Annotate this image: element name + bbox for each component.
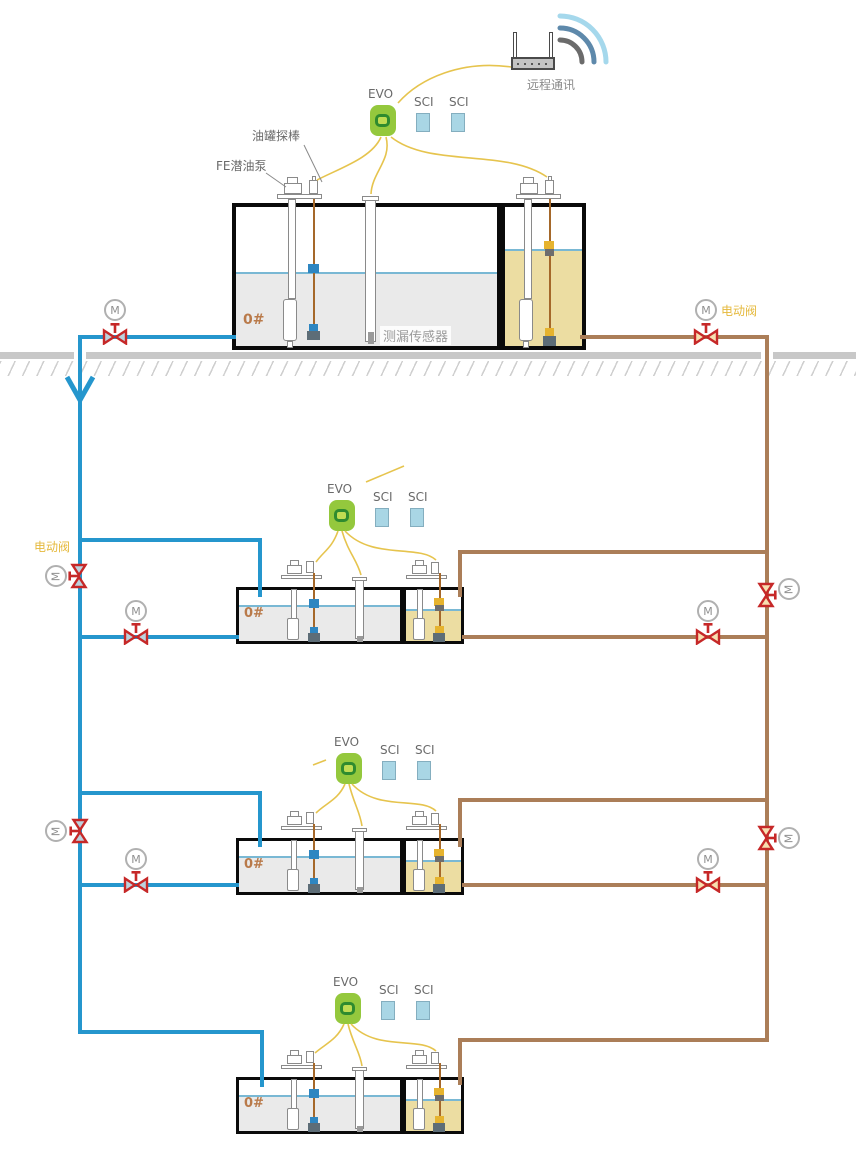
pump-column xyxy=(524,199,532,299)
probe-head xyxy=(431,562,439,574)
leak-sensor-foot xyxy=(368,332,374,344)
sci-module-icon xyxy=(416,1001,430,1020)
pump-tip xyxy=(287,341,293,348)
evo-console-4: EVO SCI SCI xyxy=(335,976,435,1024)
pump-head-cap xyxy=(287,177,298,184)
motor-valve-icon xyxy=(693,323,719,345)
motor-valve-icon xyxy=(68,563,90,589)
probe-head xyxy=(431,813,439,825)
probe-head xyxy=(431,1052,439,1064)
manhole-plate xyxy=(281,575,322,579)
diesel-branch-tank2-top xyxy=(80,540,260,597)
ground-line xyxy=(0,352,74,359)
motor-valve-icon xyxy=(755,582,777,608)
motor-actuator: M xyxy=(104,299,126,321)
leak-sensor-foot xyxy=(357,1126,363,1132)
tank-1-gasoline-liquid xyxy=(505,249,582,346)
submersible-pump-body xyxy=(283,299,297,341)
motor-letter: M xyxy=(783,584,796,594)
probe-float-stop xyxy=(435,605,444,611)
motor-actuator: M xyxy=(695,299,717,321)
leak-sensor-foot xyxy=(357,636,363,642)
leak-sensor-label: 测漏传感器 xyxy=(380,326,451,345)
sci-label: SCI xyxy=(380,744,400,757)
submersible-pump-body xyxy=(287,869,299,891)
leak-sensor-collar xyxy=(352,828,367,832)
sci-label: SCI xyxy=(415,744,435,757)
evo-console-icon xyxy=(370,105,396,136)
fuel-grade-label: 0# xyxy=(244,606,264,621)
diesel-pipeline xyxy=(67,337,262,1087)
manhole-plate xyxy=(281,1065,322,1069)
pump-head xyxy=(287,565,302,574)
sci-label: SCI xyxy=(408,491,428,504)
evo-console-1: EVO SCI SCI xyxy=(370,88,470,136)
evo-label: EVO xyxy=(368,88,393,101)
pump-column xyxy=(291,1079,297,1109)
evo-label: EVO xyxy=(334,736,359,749)
diesel-main-line xyxy=(80,337,262,1087)
motor-valve-icon xyxy=(695,623,721,645)
motor-letter: M xyxy=(131,605,141,618)
probe-head xyxy=(309,180,318,194)
manhole-plate xyxy=(516,194,561,199)
pump-column xyxy=(291,840,297,870)
probe-float xyxy=(435,1116,444,1123)
probe-float xyxy=(544,241,554,249)
router-antenna xyxy=(513,32,517,58)
probe-float xyxy=(545,328,554,336)
pump-head-cap xyxy=(523,177,534,184)
motor-letter: M xyxy=(703,605,713,618)
motor-actuator: M xyxy=(697,848,719,870)
probe-base xyxy=(543,336,556,346)
motor-actuator: M xyxy=(45,565,67,587)
probe-float xyxy=(309,850,319,859)
sci-module-icon xyxy=(416,113,430,132)
pump-column xyxy=(288,199,296,299)
probe-base xyxy=(307,331,320,340)
probe-base xyxy=(308,633,320,642)
pump-head-cap xyxy=(290,1050,299,1056)
probe-base xyxy=(433,884,445,893)
pump-head xyxy=(412,565,427,574)
tank-3-divider-wall xyxy=(400,838,406,895)
router-antenna xyxy=(549,32,553,58)
leak-sensor-tube xyxy=(355,1067,364,1129)
sci-module-icon xyxy=(410,508,424,527)
probe-base xyxy=(433,633,445,642)
probe-float xyxy=(435,877,444,884)
probe-head xyxy=(306,812,314,824)
pump-head xyxy=(287,1055,302,1064)
probe-float xyxy=(309,1089,319,1098)
gasoline-branch-tank2-top xyxy=(460,552,767,597)
evo-label: EVO xyxy=(327,483,352,496)
gasoline-pipeline xyxy=(460,337,767,1085)
leak-sensor-tube xyxy=(355,828,364,890)
fuel-grade-label: 0# xyxy=(244,857,264,872)
pump-head xyxy=(412,1055,427,1064)
motor-valve-icon xyxy=(123,871,149,893)
tank-2-divider-wall xyxy=(400,587,406,644)
pump-column xyxy=(291,589,297,619)
sci-module-icon xyxy=(451,113,465,132)
evo-console-2: EVO SCI SCI xyxy=(329,483,429,531)
motor-letter: M xyxy=(701,304,711,317)
motor-actuator: M xyxy=(125,600,147,622)
pump-head-cap xyxy=(290,811,299,817)
motor-valve-icon xyxy=(102,323,128,345)
motor-valve-icon xyxy=(69,818,91,844)
sci-module-icon xyxy=(382,761,396,780)
flow-arrow xyxy=(67,377,93,400)
probe-float-stop xyxy=(545,249,554,256)
pump-head xyxy=(287,816,302,825)
submersible-pump-callout: FE潜油泵 xyxy=(216,160,267,173)
remote-comm-label: 远程通讯 xyxy=(527,79,575,92)
motor-actuator: M xyxy=(697,600,719,622)
pump-head xyxy=(520,183,538,194)
motor-valve-icon xyxy=(695,871,721,893)
motor-valve-icon xyxy=(123,623,149,645)
leak-sensor-foot xyxy=(357,887,363,893)
submersible-pump-body xyxy=(413,869,425,891)
submersible-pump-body xyxy=(413,618,425,640)
electric-valve-label: 电动阀 xyxy=(721,305,757,318)
pump-head xyxy=(284,183,302,194)
sci-label: SCI xyxy=(449,96,469,109)
evo-screen xyxy=(375,114,390,127)
sci-label: SCI xyxy=(379,984,399,997)
sci-label: SCI xyxy=(373,491,393,504)
pump-head-cap xyxy=(415,1050,424,1056)
evo-screen xyxy=(341,762,356,775)
leak-sensor-tube xyxy=(355,577,364,639)
submersible-pump-body xyxy=(287,1108,299,1130)
gasoline-main-line xyxy=(460,337,767,1085)
submersible-pump-body xyxy=(519,299,533,341)
sci-label: SCI xyxy=(414,984,434,997)
wireless-router xyxy=(511,57,555,70)
probe-head-cap xyxy=(548,176,552,181)
wifi-signal-icon xyxy=(560,16,606,62)
evo-screen xyxy=(340,1002,355,1015)
pump-head-cap xyxy=(415,811,424,817)
probe-head xyxy=(306,1051,314,1063)
evo-console-icon xyxy=(336,753,362,784)
evo-screen xyxy=(334,509,349,522)
probe-float xyxy=(309,599,319,608)
pump-head-cap xyxy=(415,560,424,566)
probe-head xyxy=(306,561,314,573)
probe-float-stop xyxy=(435,1095,444,1101)
motor-letter: M xyxy=(50,826,63,836)
probe-base xyxy=(308,1123,320,1132)
submersible-pump-body xyxy=(413,1108,425,1130)
pump-tip xyxy=(523,341,529,348)
sci-label: SCI xyxy=(414,96,434,109)
evo-console-icon xyxy=(329,500,355,531)
probe-float xyxy=(435,626,444,633)
fuel-station-monitoring-diagram: 0# 0# xyxy=(0,0,856,1154)
sci-module-icon xyxy=(375,508,389,527)
pump-head xyxy=(412,816,427,825)
motor-actuator: M xyxy=(778,578,800,600)
manhole-plate xyxy=(281,826,322,830)
router-leds xyxy=(517,63,549,65)
probe-base xyxy=(433,1123,445,1132)
submersible-pump-body xyxy=(287,618,299,640)
motor-actuator: M xyxy=(778,827,800,849)
probe-head-cap xyxy=(312,176,316,181)
manhole-plate xyxy=(277,194,322,199)
pump-column xyxy=(417,589,423,619)
probe-float-stop xyxy=(435,856,444,862)
motor-letter: M xyxy=(110,304,120,317)
tank-4-divider-wall xyxy=(400,1077,406,1134)
probe-float xyxy=(308,264,319,273)
electric-valve-label: 电动阀 xyxy=(34,541,70,554)
evo-label: EVO xyxy=(333,976,358,989)
motor-letter: M xyxy=(131,853,141,866)
fuel-grade-label: 0# xyxy=(243,312,264,328)
evo-console-icon xyxy=(335,993,361,1024)
tank-probe-rod xyxy=(549,199,551,339)
tank-1-divider-wall xyxy=(497,203,505,350)
leak-sensor-tube xyxy=(365,196,376,342)
motor-letter: M xyxy=(783,833,796,843)
ground-hatching xyxy=(0,361,856,376)
evo-console-3: EVO SCI SCI xyxy=(336,736,436,784)
sci-module-icon xyxy=(381,1001,395,1020)
pump-column xyxy=(417,840,423,870)
sci-module-icon xyxy=(417,761,431,780)
motor-actuator: M xyxy=(125,848,147,870)
pump-head-cap xyxy=(290,560,299,566)
leak-sensor-collar xyxy=(352,577,367,581)
pump-column xyxy=(417,1079,423,1109)
probe-base xyxy=(308,884,320,893)
ground-line xyxy=(86,352,761,359)
motor-letter: M xyxy=(50,571,63,581)
tank-probe-callout: 油罐探棒 xyxy=(252,130,300,143)
diesel-branch-tank3-top xyxy=(80,793,260,847)
probe-head xyxy=(545,180,554,194)
motor-letter: M xyxy=(703,853,713,866)
probe-float xyxy=(309,324,318,331)
motor-valve-icon xyxy=(755,825,777,851)
fuel-grade-label: 0# xyxy=(244,1096,264,1111)
ground-line xyxy=(773,352,856,359)
leak-sensor-collar xyxy=(352,1067,367,1071)
gasoline-branch-tank3-top xyxy=(460,800,767,847)
leak-sensor-collar xyxy=(362,196,379,201)
motor-actuator: M xyxy=(45,820,67,842)
